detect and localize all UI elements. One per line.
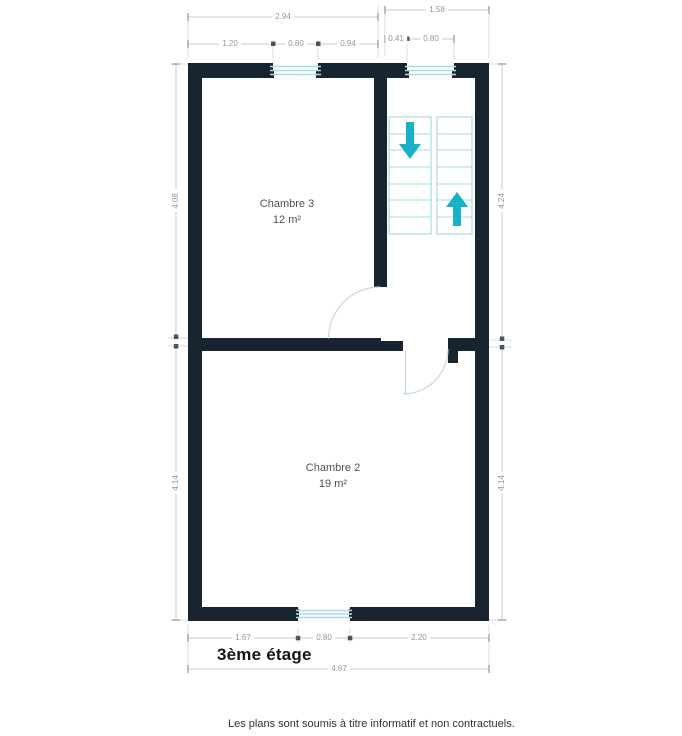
dim-left-upper: 4.08 [171,190,181,212]
dim-top-left-seg2: 0.80 [285,39,307,49]
wall-bottom-2 [350,607,489,621]
floor-title: 3ème étage [217,645,312,665]
wall-bottom-1 [188,607,298,621]
dim-top-left-seg3: 0.94 [337,39,359,49]
dim-bottom-total: 4.67 [328,664,350,674]
floor-plan-drawing [0,0,682,736]
window-top-right [405,67,456,75]
dim-top-right-seg1: 0.41 [385,34,407,44]
staircase [389,117,472,234]
room-area: 19 m² [306,476,360,492]
dim-top-right-seg2: 0.80 [420,34,442,44]
wall-door-jamb [448,338,458,363]
room-name: Chambre 3 [260,196,314,212]
dim-bottom-seg3: 2.20 [408,633,430,643]
dim-top-total-left: 2.94 [272,12,294,22]
dim-right-upper: 4.24 [497,190,507,212]
wall-middle-2 [381,341,403,351]
room-label-chambre3: Chambre 3 12 m² [260,196,314,228]
window-bottom [296,611,352,618]
room-name: Chambre 2 [306,460,360,476]
floor-plan-page: 2.94 1.58 1.20 0.80 0.94 0.41 0.80 4.08 … [0,0,682,736]
wall-left [188,63,202,621]
wall-middle-1 [202,338,381,351]
dim-bottom-seg2: 0.80 [313,633,335,643]
room-label-chambre2: Chambre 2 19 m² [306,460,360,492]
wall-right [475,63,489,621]
dim-top-left-seg1: 1.20 [219,39,241,49]
room-area: 12 m² [260,212,314,228]
dim-top-total-right: 1.58 [426,5,448,15]
wall-interior-vertical [374,63,387,287]
disclaimer-text: Les plans sont soumis à titre informatif… [228,718,515,730]
window-top-left [270,67,321,75]
dim-right-lower: 4.14 [497,472,507,494]
dim-left-lower: 4.14 [171,472,181,494]
door-arc-chambre2 [403,349,448,394]
wall-top-2 [318,63,407,78]
dim-bottom-seg1: 1.67 [232,633,254,643]
door-arc-hall [329,287,381,339]
